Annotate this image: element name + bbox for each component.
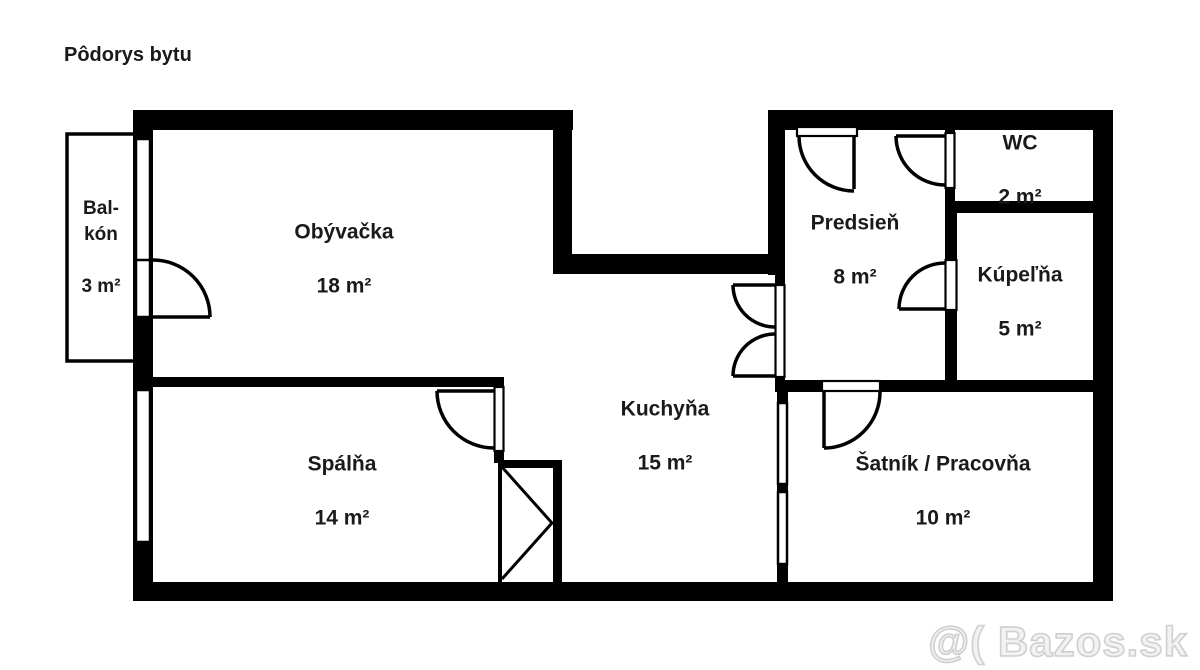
double-door-frame (776, 285, 785, 377)
room-area: 8 m² (811, 264, 900, 291)
watermark: @( Bazos.sk (928, 618, 1188, 666)
kupelna-door-frame (946, 260, 957, 310)
shaft-top-wall (498, 460, 562, 468)
wall-predsien-west-upper (768, 128, 785, 275)
room-area: 18 m² (294, 273, 393, 300)
room-label-obyvacka: Obývačka 18 m² (294, 192, 393, 327)
room-name: Kúpeľňa (977, 262, 1062, 289)
wall-notch-vertical (553, 128, 572, 274)
bedroom-window (136, 390, 150, 542)
room-name: Predsieň (811, 210, 900, 237)
room-area: 14 m² (308, 505, 377, 532)
kitchen-divider-opening-upper (778, 403, 787, 484)
room-label-balkon: Bal- kón 3 m² (81, 170, 120, 326)
kitchen-divider-opening-lower (778, 492, 787, 564)
room-label-kupelna: Kúpeľňa 5 m² (977, 235, 1062, 370)
room-area: 5 m² (977, 316, 1062, 343)
wall-notch-horizontal (553, 254, 785, 274)
spalna-door-frame (495, 387, 504, 451)
room-label-satnik: Šatník / Pracovňa 10 m² (855, 424, 1030, 559)
wall-bottom (133, 582, 1113, 601)
satnik-door-frame (822, 381, 880, 391)
room-area: 3 m² (81, 274, 120, 300)
shaft-chevron (502, 467, 552, 579)
room-area: 10 m² (855, 505, 1030, 532)
shaft (498, 460, 562, 582)
wall-kupelna-west-upper (945, 213, 957, 261)
room-label-kuchyna: Kuchyňa 15 m² (621, 369, 710, 504)
room-label-wc: WC 2 m² (998, 103, 1041, 238)
wc-door (896, 136, 945, 185)
room-label-spalna: Spálňa 14 m² (308, 424, 377, 559)
wall-predsien-south-left (775, 380, 822, 392)
balcony-door (152, 260, 210, 317)
room-name: Spálňa (308, 451, 377, 478)
wall-kitchen-divider-bottom (777, 564, 788, 582)
livingroom-window (136, 139, 150, 317)
kitchen-double-door (733, 285, 775, 376)
room-name: Šatník / Pracovňa (855, 451, 1030, 478)
room-area: 2 m² (998, 184, 1041, 211)
wc-door-frame (946, 133, 955, 188)
shaft-left-edge (498, 463, 502, 582)
room-name: Obývačka (294, 219, 393, 246)
kupelna-door (899, 263, 945, 309)
wall-right (1093, 110, 1113, 601)
wall-predsien-south-right (880, 380, 1093, 392)
room-name: Bal- kón (81, 196, 120, 248)
shaft-right-wall (553, 460, 562, 582)
floorplan-canvas: Pôdorys bytu (0, 0, 1200, 670)
room-name: WC (998, 130, 1041, 157)
entrance-door-frame (797, 127, 857, 136)
spalna-door (437, 391, 494, 448)
room-label-predsien: Predsieň 8 m² (811, 183, 900, 318)
wall-spalna-north (152, 377, 504, 387)
wall-kitchen-divider-top (777, 392, 788, 403)
room-area: 15 m² (621, 450, 710, 477)
wall-kupelna-west-lower (945, 309, 957, 380)
room-name: Kuchyňa (621, 396, 710, 423)
wall-top-left (133, 110, 573, 130)
